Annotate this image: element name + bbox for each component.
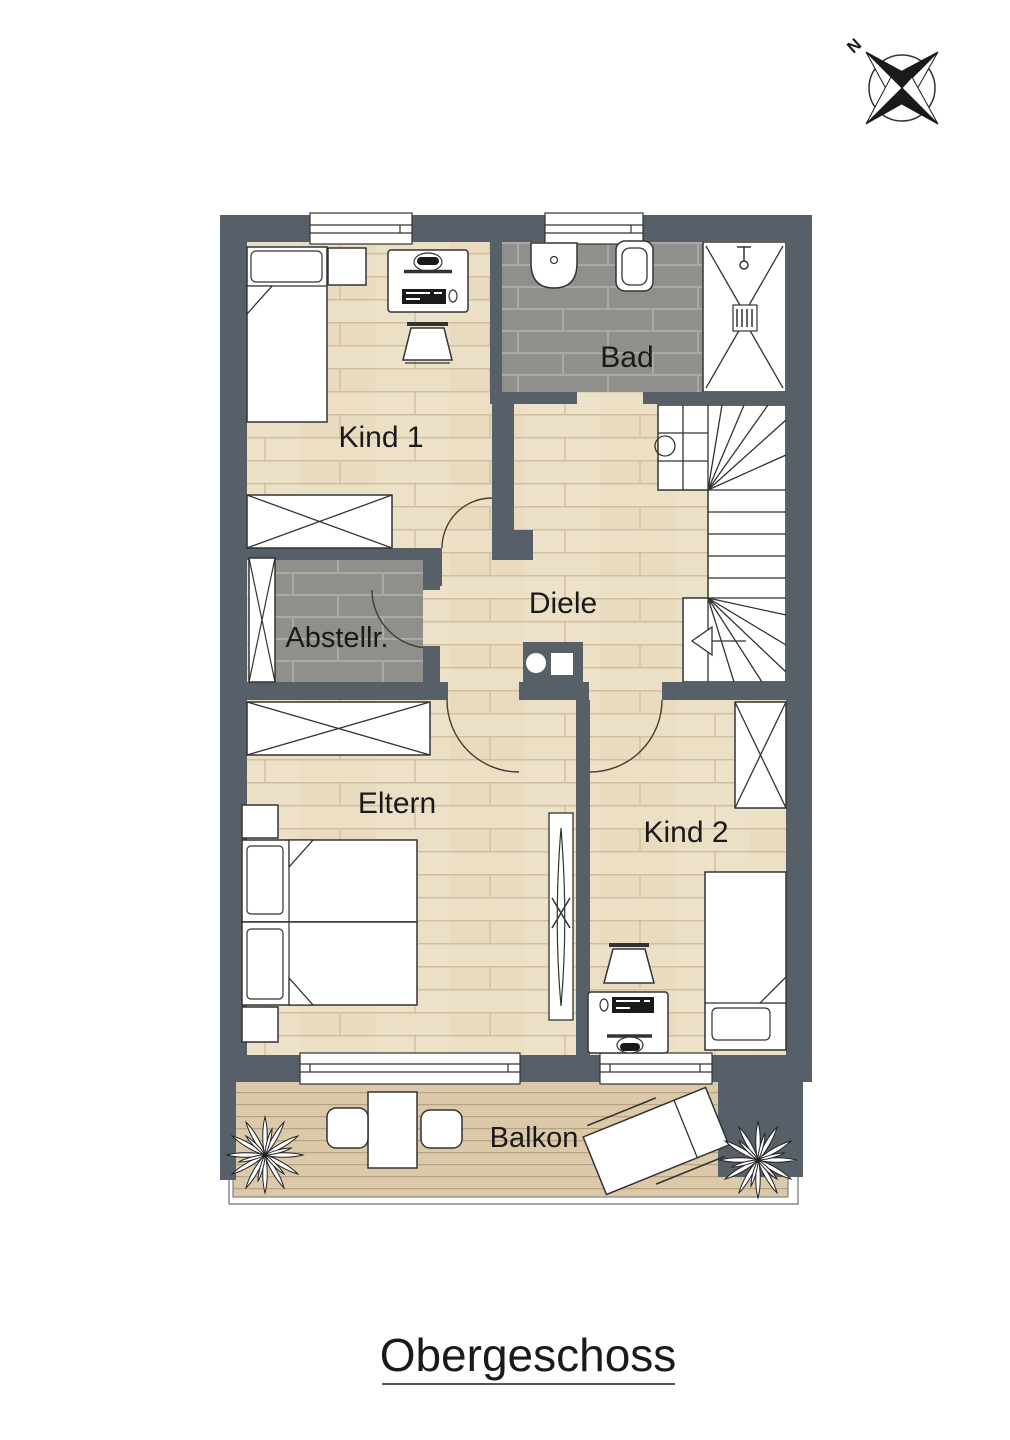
wall-abstell-right-top: [423, 558, 440, 590]
mouse-icon: [449, 290, 457, 302]
radiator: [549, 813, 573, 1020]
bed-kind1: [247, 247, 327, 422]
wall-kind2-top: [662, 682, 786, 700]
keyboard-icon: [402, 289, 446, 304]
storage-tile-floor: [275, 558, 423, 682]
washbasin-icon: [531, 243, 577, 288]
balcony-chair-right: [421, 1110, 462, 1148]
wall-top: [220, 215, 812, 242]
desk-kind1: [388, 250, 468, 312]
balcony-chair-left: [327, 1108, 368, 1148]
wardrobe-eltern: [247, 702, 430, 755]
shaft-square-icon: [551, 653, 573, 675]
keyboard-icon: [612, 997, 654, 1013]
wall-balcony-left: [220, 1082, 236, 1180]
shelf-cabinet: [249, 558, 275, 682]
balcony-door-kind2: [600, 1053, 712, 1084]
nightstand-kind1: [328, 248, 366, 285]
floor-plan-svg: Kind 1 Bad Diele Abstellr. Eltern Kind 2…: [0, 0, 1010, 1440]
nightstand-eltern-top: [242, 805, 278, 838]
room-label-abstellraum: Abstellr.: [285, 622, 388, 654]
page-title: Obergeschoss: [380, 1329, 677, 1381]
room-label-balkon: Balkon: [490, 1122, 579, 1154]
wall-abstell-bottom: [220, 682, 448, 700]
mouse-icon: [600, 999, 608, 1011]
balcony-door-eltern: [300, 1053, 520, 1084]
wardrobe-kind1: [247, 495, 392, 548]
wall-bad-bottom-right: [643, 392, 786, 404]
room-label-diele: Diele: [529, 587, 597, 620]
desk-kind2: [588, 992, 668, 1053]
chair-kind1: [403, 324, 452, 363]
abstellraum-furniture: [249, 558, 275, 682]
shaft-circle-icon: [526, 653, 546, 673]
window-kind1: [310, 213, 412, 244]
bed-kind2: [705, 872, 786, 1050]
wall-kind1-bad: [490, 242, 502, 394]
toilet-icon: [616, 241, 653, 291]
room-label-kind1: Kind 1: [338, 421, 423, 454]
balcony-table: [368, 1092, 417, 1168]
wall-bad-bottom-left: [490, 392, 577, 404]
wall-center-stub: [519, 682, 589, 700]
wall-right: [786, 215, 812, 1058]
wardrobe-kind2: [735, 702, 786, 808]
wall-abstell-right-bottom: [423, 646, 440, 682]
window-bad: [545, 213, 643, 244]
plan-title: Obergeschoss: [380, 1329, 677, 1384]
wall-kind1-diele: [492, 404, 514, 560]
room-label-kind2: Kind 2: [643, 816, 728, 849]
double-bed: [242, 840, 417, 1005]
room-label-bad: Bad: [600, 341, 653, 374]
room-label-eltern: Eltern: [358, 787, 436, 820]
nightstand-eltern-bottom: [242, 1007, 278, 1042]
wall-stub-diele: [514, 530, 533, 560]
shower: [703, 242, 786, 392]
